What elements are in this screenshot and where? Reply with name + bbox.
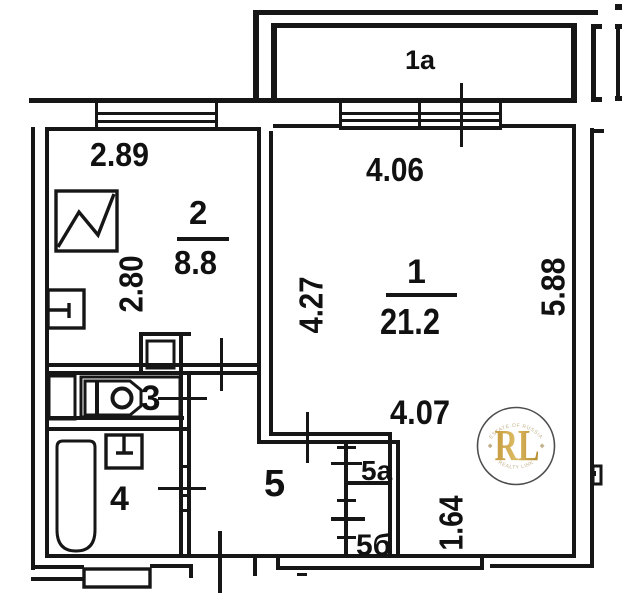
svg-text:4.06: 4.06 (366, 151, 424, 188)
svg-text:1: 1 (407, 253, 426, 291)
svg-text:8.8: 8.8 (174, 244, 217, 281)
svg-text:1.64: 1.64 (433, 495, 470, 551)
svg-text:2.89: 2.89 (90, 136, 149, 173)
svg-text:3: 3 (141, 379, 160, 418)
svg-text:5б: 5б (356, 529, 391, 562)
svg-text:21.2: 21.2 (380, 301, 440, 342)
svg-text:2: 2 (189, 194, 207, 231)
svg-text:1a: 1a (405, 45, 436, 75)
svg-text:RL: RL (495, 421, 540, 470)
svg-text:4: 4 (110, 480, 129, 518)
svg-text:5.88: 5.88 (535, 258, 572, 317)
svg-text:4.27: 4.27 (293, 277, 330, 334)
svg-text:4.07: 4.07 (390, 394, 450, 432)
svg-text:2.80: 2.80 (113, 256, 150, 313)
svg-text:5: 5 (264, 463, 285, 505)
svg-text:5а: 5а (361, 455, 393, 486)
